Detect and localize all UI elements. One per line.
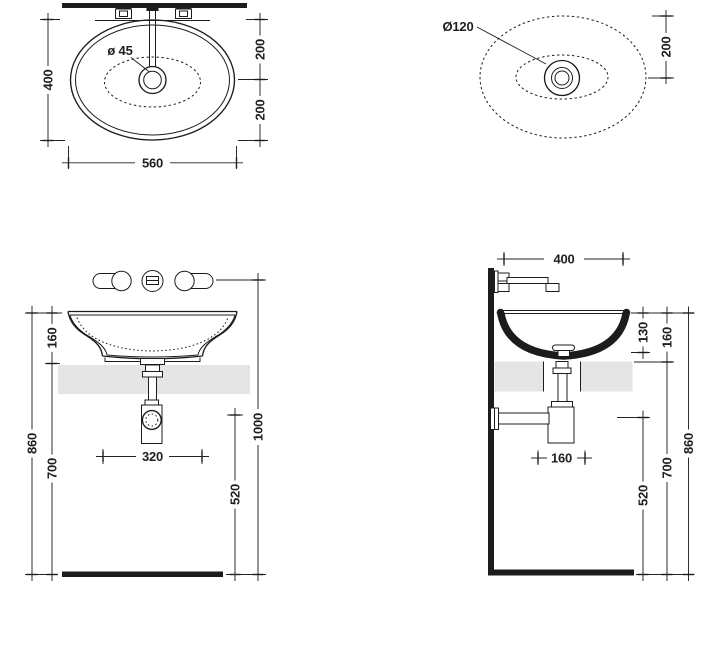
dim-front-outlet-height: 520 (227, 408, 243, 581)
dim-front-left-inner: 160 700 (45, 306, 61, 581)
drain-callout-plan2: Ø120 (442, 19, 546, 64)
dim-side-outlet-height: 520 (636, 411, 651, 582)
basin-hidden-inner (516, 55, 608, 99)
washbasin-drawing: ø 45 400 200 200 (0, 0, 724, 652)
floor-side (488, 570, 634, 576)
spout-side (495, 271, 560, 293)
basin-side-section (497, 309, 631, 357)
dim-side-outlet-offset: 160 (531, 451, 592, 466)
dim-side-middle: 160 700 (660, 307, 675, 582)
dim-side-spout-reach: 400 (497, 252, 630, 267)
dim-front-faucet-height: 1000 (216, 273, 266, 581)
label-side-rim-to-floor: 860 (681, 433, 696, 454)
label-side-counter-to-floor: 700 (660, 457, 675, 478)
dim-side-bowl-depth: 130 (636, 307, 651, 360)
floor-front (62, 572, 223, 578)
technical-drawing-page: ø 45 400 200 200 (0, 0, 724, 652)
basin-front (68, 312, 237, 365)
label-front-counter-to-floor: 700 (45, 458, 60, 479)
label-front-faucet-height: 1000 (251, 413, 266, 441)
wall-section-plan (62, 3, 247, 11)
drain-flange-plan (545, 61, 580, 96)
plan-view: ø 45 400 200 200 (40, 3, 268, 171)
faucet-front (93, 271, 213, 292)
plan-drain-view: Ø120 200 (442, 10, 674, 138)
label-plan-drain-to-front: 200 (253, 99, 268, 120)
label-front-rim-above-counter: 160 (45, 327, 60, 348)
label-side-rim-above-counter: 160 (660, 327, 675, 348)
label-side-bowl-depth: 130 (636, 322, 651, 343)
dim-plan-offsets: 200 200 (238, 13, 268, 147)
label-plan-width: 560 (142, 155, 163, 170)
label-side-outlet-height: 520 (636, 485, 651, 506)
label-side-spout-reach: 400 (553, 252, 574, 267)
basin-plan (71, 20, 235, 140)
label-front-tap-spacing: 320 (142, 449, 163, 464)
trap-front (142, 365, 163, 444)
dim-front-tap-spacing: 320 (96, 449, 209, 464)
label-front-outlet-height: 520 (228, 484, 243, 505)
label-plan-drain-hole: ø 45 (107, 43, 132, 58)
label-plan2-drain-to-wall: 200 (659, 36, 674, 57)
front-view: 860 160 700 320 520 (25, 271, 267, 582)
label-drain-flange: Ø120 (442, 19, 473, 34)
side-view: 400 (488, 252, 696, 582)
dim-plan-depth: 400 (40, 13, 65, 147)
dim-plan2-offset: 200 (648, 10, 674, 84)
label-plan-drain-to-wall: 200 (253, 39, 268, 60)
dim-side-total: 860 (681, 307, 696, 582)
label-front-rim-to-floor: 860 (25, 433, 40, 454)
label-side-outlet-to-wall: 160 (551, 451, 572, 466)
basin-hidden-outline (480, 16, 646, 138)
dim-plan-width: 560 (62, 146, 243, 171)
label-plan-depth: 400 (41, 69, 56, 90)
